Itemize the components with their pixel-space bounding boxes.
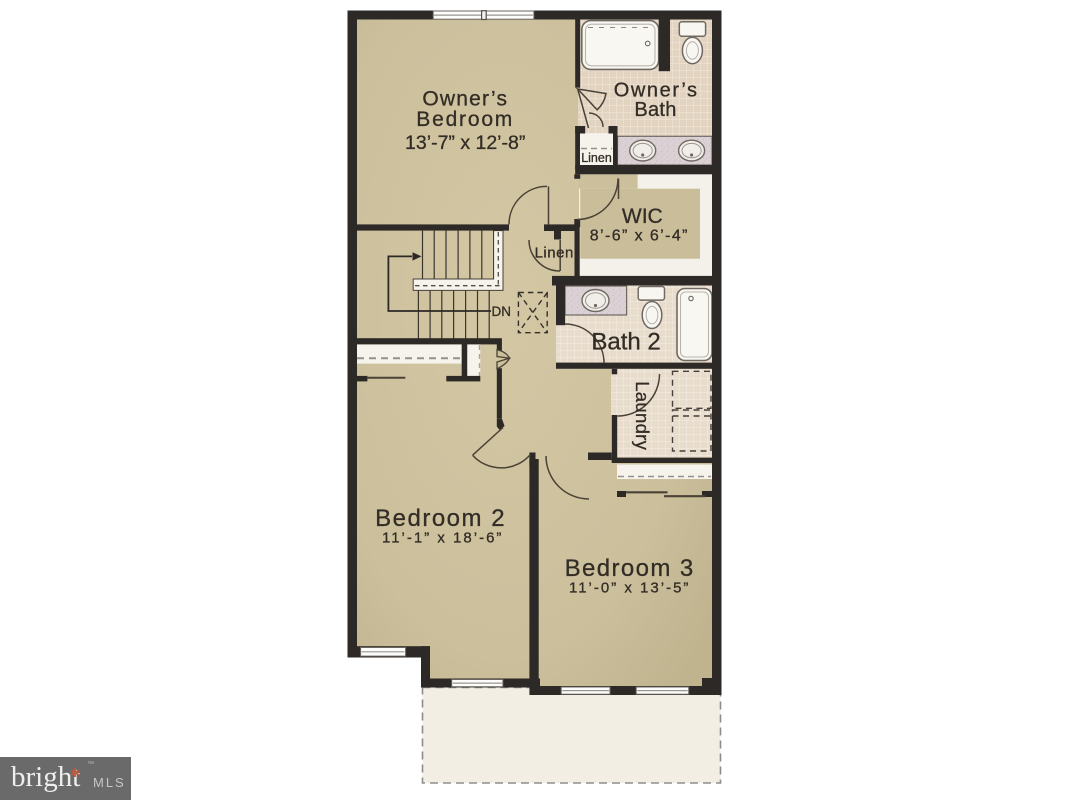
svg-text:Linen: Linen [535, 245, 574, 262]
svg-text:Bath 2: Bath 2 [591, 329, 660, 356]
svg-text:Owner’s: Owner’s [614, 79, 699, 101]
svg-text:8’-6” x 6’-4”: 8’-6” x 6’-4” [590, 228, 689, 245]
svg-text:Bedroom 2: Bedroom 2 [375, 505, 506, 532]
svg-text:Laundry: Laundry [632, 381, 653, 450]
svg-text:DN: DN [492, 304, 512, 319]
svg-text:Bath: Bath [634, 99, 676, 121]
svg-text:Bedroom: Bedroom [416, 108, 514, 131]
svg-text:11’-1” x 18’-6”: 11’-1” x 18’-6” [382, 529, 503, 546]
svg-text:11’-0” x 13’-5”: 11’-0” x 13’-5” [569, 580, 690, 597]
svg-text:Bedroom 3: Bedroom 3 [565, 555, 695, 582]
svg-text:13’-7” x 12’-8”: 13’-7” x 12’-8” [405, 132, 525, 154]
svg-text:WIC: WIC [622, 205, 663, 228]
svg-text:Linen: Linen [581, 151, 612, 165]
